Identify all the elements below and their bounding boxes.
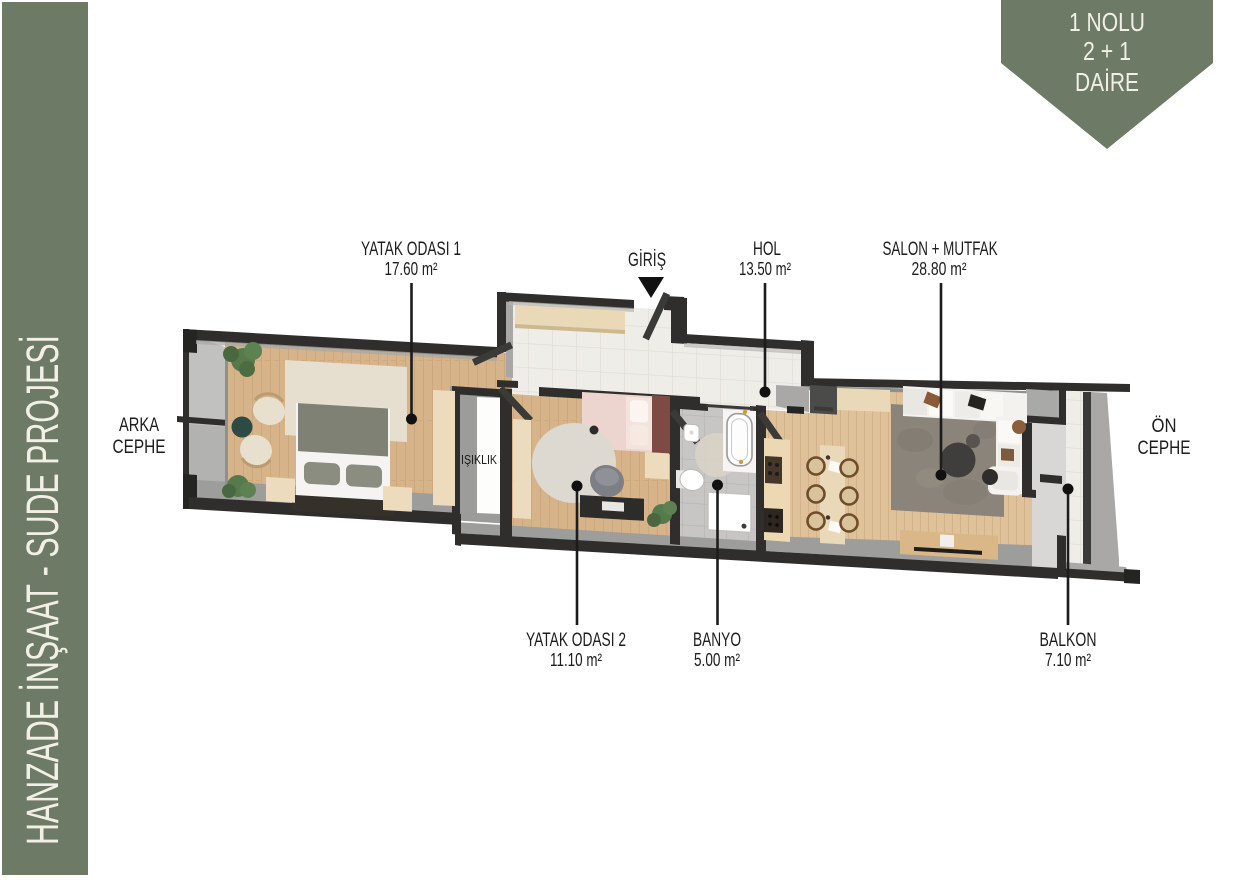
svg-text:YATAK ODASI 1: YATAK ODASI 1 [361,239,461,260]
svg-text:11.10 m²: 11.10 m² [550,650,602,670]
svg-text:1 NOLU: 1 NOLU [1069,7,1145,37]
svg-text:7.10 m²: 7.10 m² [1045,650,1091,670]
svg-text:HOL: HOL [753,239,781,260]
svg-text:13.50 m²: 13.50 m² [739,259,791,279]
svg-text:28.80 m²: 28.80 m² [912,259,967,279]
svg-text:GİRİŞ: GİRİŞ [628,250,666,271]
svg-text:BALKON: BALKON [1040,630,1097,651]
svg-text:5.00 m²: 5.00 m² [694,650,740,670]
svg-text:2 + 1: 2 + 1 [1083,36,1131,66]
svg-text:YATAK ODASI 2: YATAK ODASI 2 [526,630,626,651]
svg-text:CEPHE: CEPHE [1138,438,1191,459]
svg-text:17.60 m²: 17.60 m² [385,259,438,279]
svg-text:ARKA: ARKA [119,415,159,436]
svg-text:DAİRE: DAİRE [1075,67,1139,97]
svg-text:IŞIKLIK: IŞIKLIK [461,452,497,467]
svg-text:HANZADE İNŞAAT - SUDE PROJESİ: HANZADE İNŞAAT - SUDE PROJESİ [17,335,68,845]
svg-text:CEPHE: CEPHE [113,437,166,458]
svg-text:ÖN: ÖN [1152,416,1177,437]
svg-text:BANYO: BANYO [693,630,741,651]
svg-text:SALON + MUTFAK: SALON + MUTFAK [883,239,998,260]
